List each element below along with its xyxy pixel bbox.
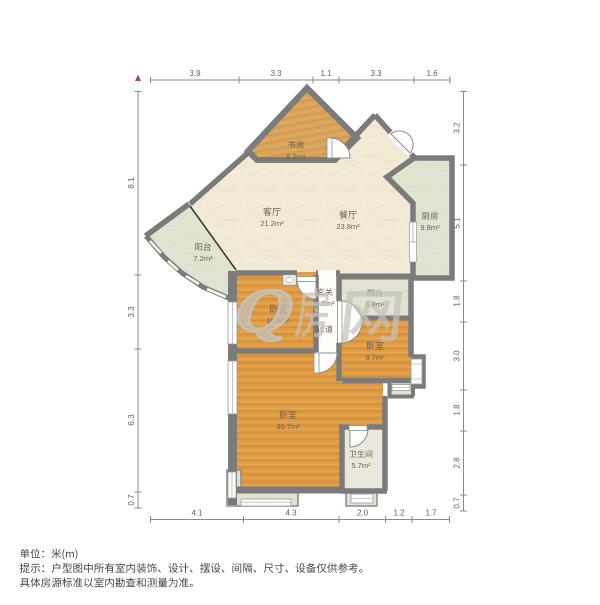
svg-text:9.8m²: 9.8m² bbox=[420, 223, 440, 232]
svg-text:0.7: 0.7 bbox=[453, 497, 462, 509]
svg-text:4.3: 4.3 bbox=[285, 509, 297, 518]
svg-text:9.7m²: 9.7m² bbox=[365, 353, 385, 362]
svg-text:30.7m²: 30.7m² bbox=[276, 422, 300, 431]
svg-text:2.0: 2.0 bbox=[357, 509, 369, 518]
svg-text:3.0: 3.0 bbox=[453, 350, 462, 362]
svg-text:1.7: 1.7 bbox=[425, 509, 437, 518]
svg-text:7.2m²: 7.2m² bbox=[193, 254, 213, 263]
svg-text:5.7m²: 5.7m² bbox=[351, 461, 371, 470]
svg-text:2.8: 2.8 bbox=[453, 457, 462, 469]
svg-text:8.1: 8.1 bbox=[127, 177, 136, 189]
svg-text:23.8m²: 23.8m² bbox=[336, 222, 360, 231]
svg-text:1.8: 1.8 bbox=[453, 295, 462, 307]
svg-text:1.8: 1.8 bbox=[453, 404, 462, 416]
svg-text:1.6: 1.6 bbox=[426, 69, 438, 78]
svg-text:3.3: 3.3 bbox=[127, 306, 136, 318]
svg-text:3.3: 3.3 bbox=[370, 69, 382, 78]
svg-text:3.9: 3.9 bbox=[189, 69, 201, 78]
svg-text:8.5m²: 8.5m² bbox=[286, 152, 306, 161]
svg-text:1.2: 1.2 bbox=[393, 509, 405, 518]
svg-text:4.1: 4.1 bbox=[191, 509, 203, 518]
svg-text:3.2: 3.2 bbox=[453, 122, 462, 134]
svg-text:3.3: 3.3 bbox=[270, 69, 282, 78]
svg-text:0.7: 0.7 bbox=[127, 494, 136, 506]
svg-text:6.3: 6.3 bbox=[127, 414, 136, 426]
svg-text:Q: Q bbox=[231, 276, 298, 345]
svg-text:1.1: 1.1 bbox=[320, 69, 332, 78]
svg-text:21.2m²: 21.2m² bbox=[260, 219, 284, 228]
